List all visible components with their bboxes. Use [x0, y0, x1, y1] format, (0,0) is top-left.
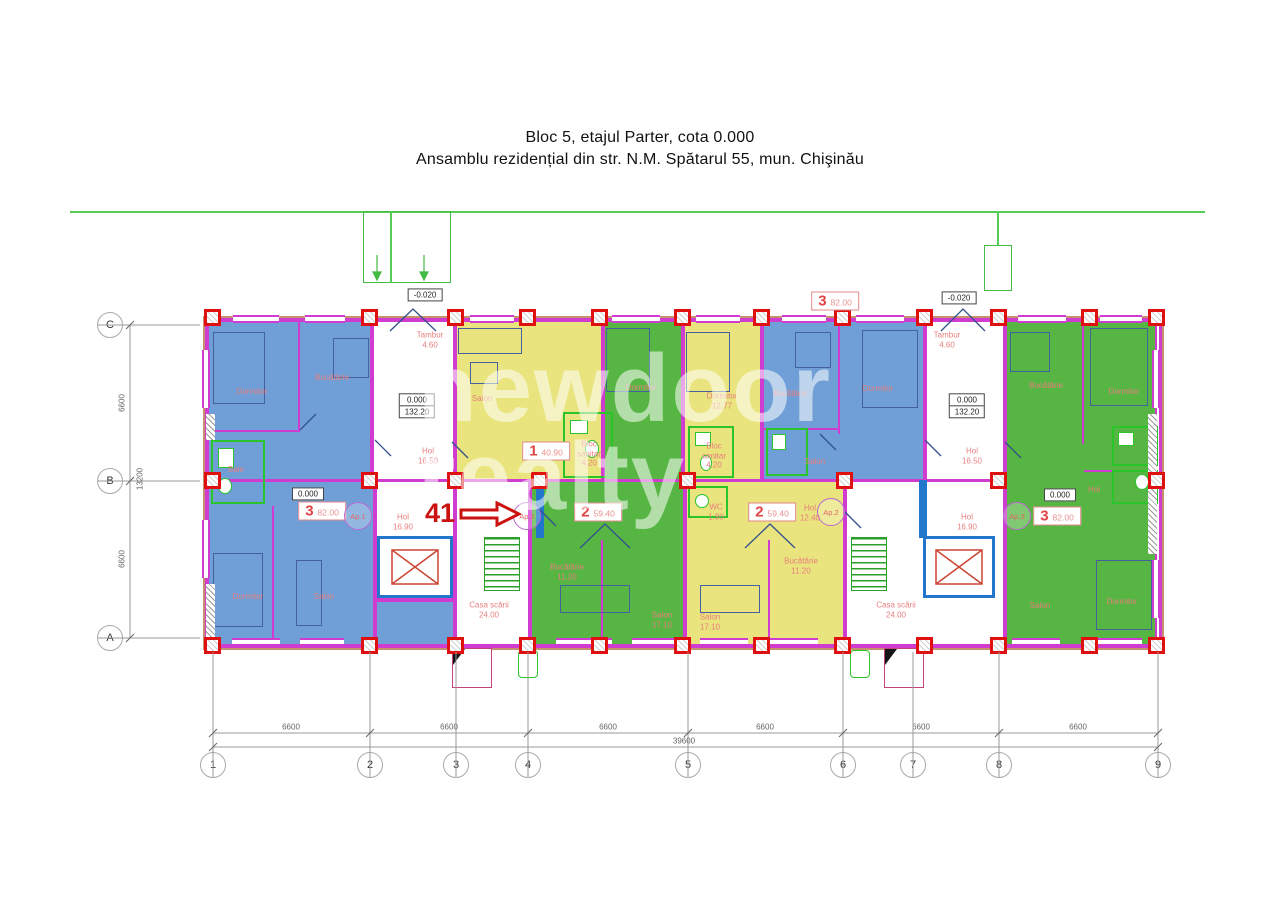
level-marker: 0.000: [292, 487, 324, 500]
apartment-badge: Ap.3: [1003, 502, 1031, 530]
partition: [272, 506, 274, 644]
sink: [772, 434, 786, 450]
window: [700, 638, 748, 646]
dimension-label: 6600: [599, 723, 617, 732]
apartment-badge: Ap.2: [817, 498, 845, 526]
staircase-label: Casa scării24.00: [469, 600, 509, 619]
room-label: Dormitor12.77: [707, 391, 738, 410]
room-label: Salon17.10: [700, 612, 720, 631]
site-line: [70, 211, 1205, 213]
window: [1018, 315, 1066, 323]
axis-bubble: 8: [986, 752, 1012, 778]
window: [770, 638, 818, 646]
axis-bubble: 3: [443, 752, 469, 778]
room-label: Hol: [1088, 485, 1100, 495]
window: [202, 350, 210, 408]
entrance-canopy-right: [984, 245, 1012, 291]
unit-annotation: 41: [425, 500, 521, 527]
entrance-porch-right: [884, 648, 924, 688]
window: [305, 315, 345, 323]
axis-bubble: 6: [830, 752, 856, 778]
hol-label: Hol16.90: [393, 512, 413, 531]
apartment-tag: 259.40: [574, 503, 622, 522]
level-marker: 0.000132.20: [399, 393, 435, 418]
window: [300, 638, 344, 646]
axis-bubble: 7: [900, 752, 926, 778]
axis-bubble: C: [97, 312, 123, 338]
dimension-label: 6600: [118, 550, 127, 568]
table: [795, 332, 831, 368]
window: [470, 315, 514, 323]
wall-hatch: [206, 584, 215, 638]
bed: [862, 330, 918, 408]
room-label: Bucătărie11.20: [784, 556, 818, 575]
partition: [768, 540, 770, 644]
apartment-tag: 382.00: [298, 502, 346, 521]
wall-segment: [919, 480, 927, 538]
partition: [1082, 322, 1084, 444]
apartment-badge: Ap.1: [344, 502, 372, 530]
room-label: Dormitor: [1107, 597, 1138, 607]
bed: [213, 553, 263, 627]
wall-hatch: [206, 414, 215, 440]
partition: [838, 322, 840, 434]
room-label: Blocsanitar4.20: [577, 440, 601, 469]
table: [333, 338, 369, 378]
window: [782, 315, 826, 323]
room-label: WC1.80: [708, 502, 724, 521]
room-label: Salon: [1030, 601, 1050, 611]
entrance-door: [850, 650, 870, 678]
dimension-total-label: 39600: [673, 737, 695, 746]
window: [856, 315, 904, 323]
axis-bubble: 1: [200, 752, 226, 778]
hol-label: Hol16.50: [418, 446, 438, 465]
apartment-tag: 382.00: [811, 292, 859, 311]
room-label: Salon: [314, 592, 334, 602]
room-label: Salon: [805, 457, 825, 467]
apartment-tag: 259.40: [748, 503, 796, 522]
elevator-right: [923, 536, 995, 598]
canopy-rail: [390, 211, 392, 283]
sink: [1118, 432, 1134, 446]
window: [612, 315, 660, 323]
entry-level-marker: -0.020: [942, 291, 977, 304]
dimension-label: 6600: [282, 723, 300, 732]
axis-bubble: 4: [515, 752, 541, 778]
window: [233, 315, 279, 323]
entrance-door: [518, 650, 538, 678]
window: [1012, 638, 1060, 646]
tambur-label: Tambur4.60: [417, 330, 444, 349]
room-label: Bucătărie11.20: [550, 562, 584, 581]
room-label: Salon: [472, 394, 492, 404]
unit-number: 41: [425, 500, 455, 527]
axis-bubble: 9: [1145, 752, 1171, 778]
room-label: Dormitor: [1109, 387, 1140, 397]
partition: [209, 430, 300, 432]
sofa: [458, 328, 522, 354]
table: [470, 362, 498, 384]
hol-label: Hol16.90: [957, 512, 977, 531]
floor-plan-sheet: Bloc 5, etajul Parter, cota 0.000 Ansamb…: [0, 0, 1280, 905]
room-label: Bucătărie: [773, 389, 807, 399]
toilet: [1135, 474, 1149, 490]
window: [1100, 315, 1142, 323]
room-label: Dormitor: [863, 384, 894, 394]
room-label: Hol12.40: [800, 503, 820, 522]
level-marker: 0.000132.20: [949, 393, 985, 418]
window: [696, 315, 740, 323]
window: [232, 638, 280, 646]
room-label: Baie: [228, 465, 244, 475]
axis-bubble: 2: [357, 752, 383, 778]
window: [632, 638, 674, 646]
stairs-left: [484, 537, 520, 591]
table: [1010, 332, 1050, 372]
room-label: Dormitor: [626, 383, 657, 393]
entry-level-marker: -0.020: [408, 288, 443, 301]
bed: [686, 332, 730, 392]
sofa: [560, 585, 630, 613]
sink: [570, 420, 588, 434]
red-arrow-icon: [459, 501, 521, 527]
partition: [298, 322, 300, 432]
dimension-label: 6600: [1069, 723, 1087, 732]
level-marker: 0.000: [1044, 488, 1076, 501]
axis-bubble: A: [97, 625, 123, 651]
room-label: Dormitor: [233, 592, 264, 602]
room-label: Salon17.10: [652, 610, 672, 629]
dimension-label: 6600: [756, 723, 774, 732]
window: [1152, 350, 1160, 408]
room-label: Bucătărie: [315, 373, 349, 383]
entrance-canopy-left: [363, 211, 451, 283]
window: [1152, 560, 1160, 618]
dimension-label: 6600: [118, 394, 127, 412]
tambur-label: Tambur4.60: [934, 330, 961, 349]
room-label: Bucătărie: [1029, 381, 1063, 391]
plan-title-line2: Ansamblu rezidențial din str. N.M. Spăta…: [0, 151, 1280, 169]
entrance-porch-left: [452, 648, 492, 688]
plan-title-line1: Bloc 5, etajul Parter, cota 0.000: [0, 129, 1280, 147]
dimension-label: 6600: [912, 723, 930, 732]
elevator-left: [377, 536, 453, 598]
apartment-tag: 140.90: [522, 442, 570, 461]
axis-bubble: 5: [675, 752, 701, 778]
window: [202, 520, 210, 578]
staircase-label: Casa scării24.00: [876, 600, 916, 619]
sofa: [700, 585, 760, 613]
apartment-tag: 382.00: [1033, 507, 1081, 526]
canopy-rail: [997, 211, 999, 245]
stairs-right: [851, 537, 887, 591]
room-label: Dormitor: [237, 387, 268, 397]
toilet: [695, 494, 709, 508]
room-label: Blocsanitar4.20: [702, 442, 726, 471]
dimension-total-label: 13200: [136, 468, 145, 490]
axis-bubble: B: [97, 468, 123, 494]
dimension-label: 6600: [440, 723, 458, 732]
hol-label: Hol16.50: [962, 446, 982, 465]
bed: [1096, 560, 1152, 630]
